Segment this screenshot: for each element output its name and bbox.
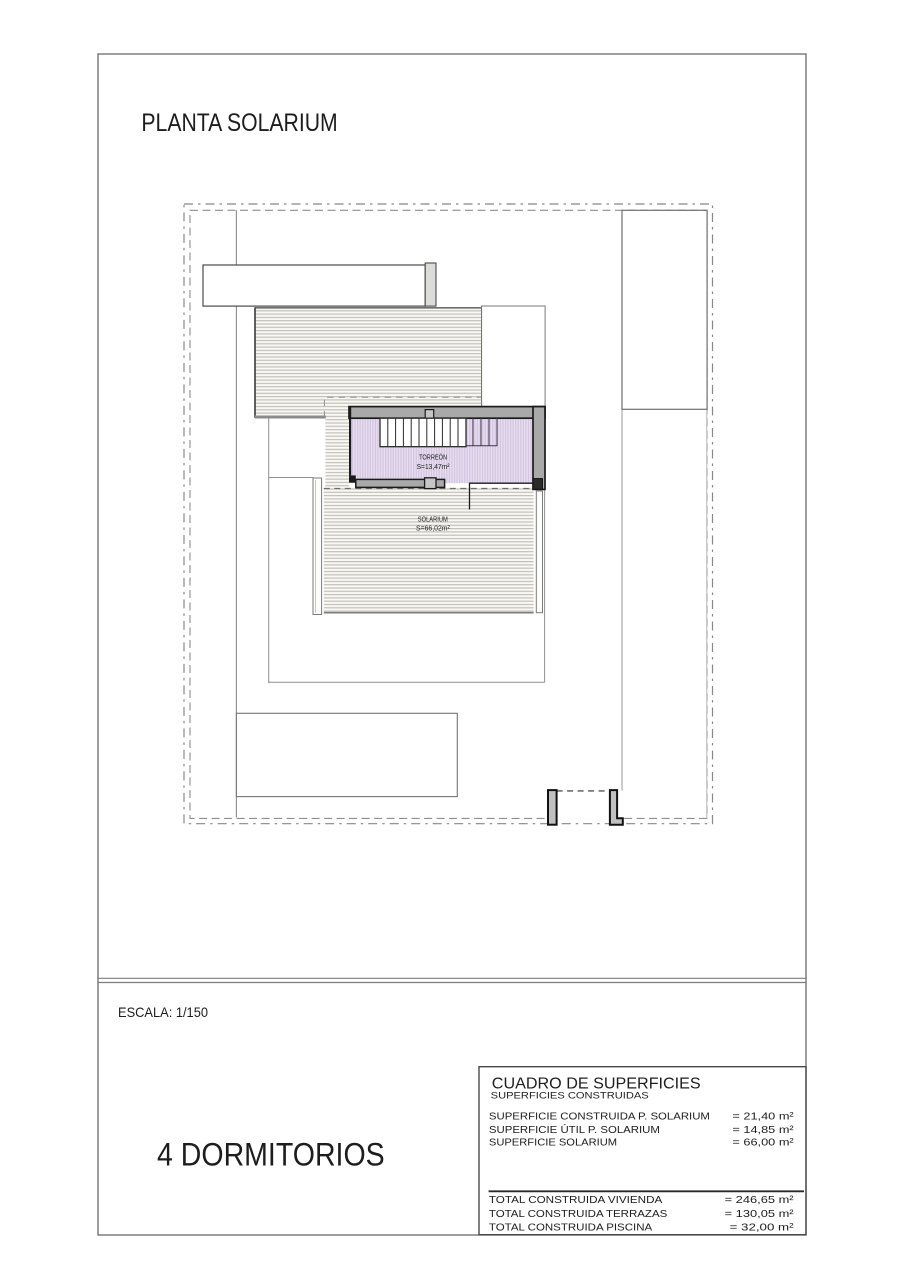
svg-text:= 21,40 m²: = 21,40 m² [732, 1112, 794, 1123]
svg-text:= 130,05 m²: = 130,05 m² [725, 1209, 795, 1220]
svg-text:= 14,85 m²: = 14,85 m² [732, 1125, 794, 1136]
svg-text:4 DORMITORIOS: 4 DORMITORIOS [157, 1137, 385, 1173]
svg-text:= 246,65 m²: = 246,65 m² [725, 1195, 795, 1206]
svg-text:= 66,00 m²: = 66,00 m² [732, 1138, 794, 1149]
svg-text:SUPERFICIE CONSTRUIDA P. SOLAR: SUPERFICIE CONSTRUIDA P. SOLARIUM [489, 1112, 710, 1123]
svg-text:= 32,00 m²: = 32,00 m² [730, 1222, 795, 1233]
svg-text:TORREÓN: TORREÓN [419, 453, 447, 462]
svg-text:TOTAL CONSTRUIDA PISCINA: TOTAL CONSTRUIDA PISCINA [489, 1222, 652, 1233]
svg-text:TOTAL CONSTRUIDA VIVIENDA: TOTAL CONSTRUIDA VIVIENDA [489, 1195, 662, 1206]
svg-text:SUPERFICIE SOLARIUM: SUPERFICIE SOLARIUM [489, 1138, 617, 1149]
svg-text:SOLARIUM: SOLARIUM [418, 514, 448, 523]
svg-text:TOTAL CONSTRUIDA TERRAZAS: TOTAL CONSTRUIDA TERRAZAS [489, 1209, 667, 1220]
svg-text:ESCALA: 1/150: ESCALA: 1/150 [118, 1004, 208, 1020]
svg-text:S=66,02m²: S=66,02m² [416, 524, 450, 533]
svg-text:PLANTA SOLARIUM: PLANTA SOLARIUM [141, 109, 337, 137]
svg-text:SUPERFICIES CONSTRUIDAS: SUPERFICIES CONSTRUIDAS [491, 1090, 649, 1101]
svg-text:S=13,47m²: S=13,47m² [417, 462, 450, 471]
svg-text:SUPERFICIE ÚTIL P. SOLARIUM: SUPERFICIE ÚTIL P. SOLARIUM [489, 1123, 660, 1136]
